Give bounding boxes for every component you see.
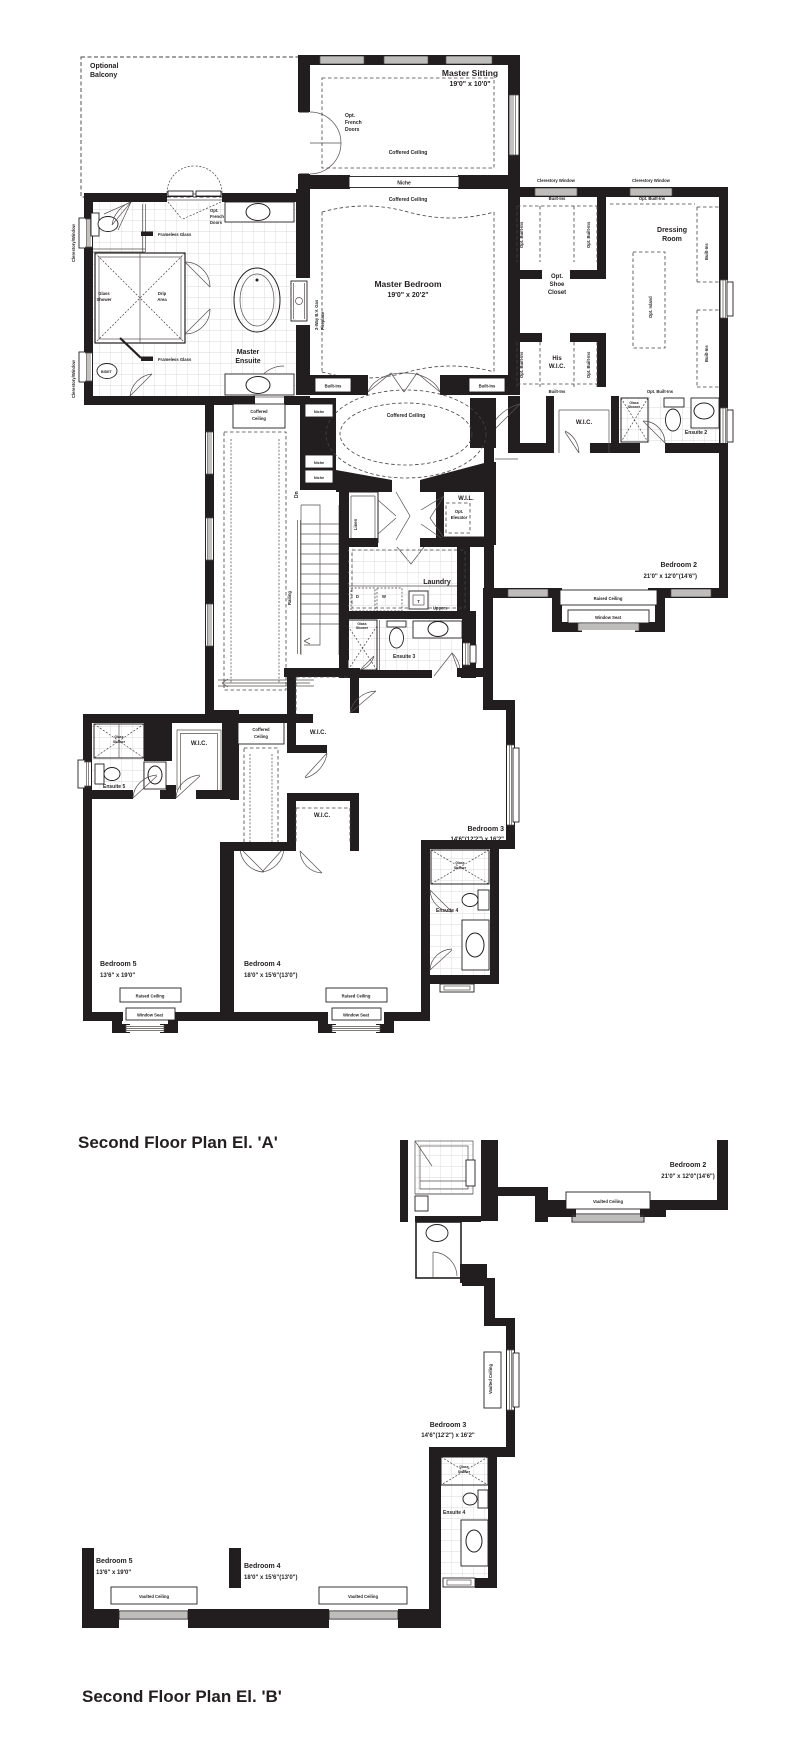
svg-text:Raised Ceiling: Raised Ceiling — [342, 994, 371, 999]
svg-text:Master: Master — [237, 349, 260, 356]
svg-text:Second Floor Plan El. 'A': Second Floor Plan El. 'A' — [78, 1133, 278, 1152]
svg-text:Bedroom 5: Bedroom 5 — [100, 961, 137, 968]
svg-text:Vaulted Ceiling: Vaulted Ceiling — [139, 1594, 169, 1599]
svg-text:French: French — [345, 120, 362, 126]
svg-text:Opt.: Opt. — [345, 113, 356, 119]
svg-text:Bedroom 2: Bedroom 2 — [660, 562, 697, 569]
svg-text:Window Seat: Window Seat — [343, 1013, 370, 1018]
svg-text:Built-Ins: Built-Ins — [704, 345, 709, 362]
svg-text:Second Floor Plan El. 'B': Second Floor Plan El. 'B' — [82, 1687, 282, 1706]
svg-text:Bedroom 2: Bedroom 2 — [670, 1162, 707, 1169]
svg-text:19'0" x 20'2": 19'0" x 20'2" — [387, 292, 428, 299]
svg-text:Drip: Drip — [158, 291, 167, 296]
svg-text:T: T — [417, 599, 420, 604]
svg-text:Shower: Shower — [628, 405, 641, 409]
svg-text:Ensuite 2: Ensuite 2 — [685, 430, 707, 436]
svg-text:Built-Ins: Built-Ins — [325, 384, 342, 389]
svg-text:Glass: Glass — [114, 735, 123, 739]
svg-text:Niche: Niche — [314, 476, 324, 480]
svg-text:Bedroom 3: Bedroom 3 — [430, 1422, 467, 1429]
svg-text:Window Seat: Window Seat — [137, 1013, 164, 1018]
svg-text:Railing: Railing — [287, 591, 292, 605]
svg-text:Doors: Doors — [345, 127, 360, 133]
svg-text:Shoe: Shoe — [550, 282, 565, 288]
svg-text:D: D — [356, 594, 359, 599]
svg-text:W.I.L.: W.I.L. — [458, 496, 474, 502]
svg-text:Niche: Niche — [397, 181, 411, 187]
svg-text:W.I.C.: W.I.C. — [314, 813, 331, 819]
svg-text:21'0" x 12'0"(14'6"): 21'0" x 12'0"(14'6") — [643, 574, 697, 580]
svg-text:Vaulted Ceiling: Vaulted Ceiling — [348, 1594, 378, 1599]
svg-text:Coffered Ceiling: Coffered Ceiling — [389, 197, 428, 203]
svg-text:21'0" x 12'0"(14'6"): 21'0" x 12'0"(14'6") — [661, 1174, 715, 1180]
svg-text:Coffered: Coffered — [252, 727, 270, 732]
svg-text:Shower: Shower — [96, 297, 111, 302]
svg-text:Glass: Glass — [455, 861, 464, 865]
svg-text:13'6" x 19'0": 13'6" x 19'0" — [100, 973, 135, 979]
svg-text:Opt. Built-Ins: Opt. Built-Ins — [519, 351, 524, 378]
svg-text:Raised Ceiling: Raised Ceiling — [594, 596, 623, 601]
svg-text:Closet: Closet — [548, 290, 566, 296]
svg-text:Clerestory Window: Clerestory Window — [632, 178, 671, 183]
svg-text:Clerestory/Window: Clerestory/Window — [71, 359, 76, 398]
svg-text:Ensuite 5: Ensuite 5 — [103, 784, 125, 790]
svg-text:Master Sitting: Master Sitting — [442, 68, 498, 78]
svg-text:Raised Ceiling: Raised Ceiling — [136, 994, 165, 999]
svg-text:Opt. Island: Opt. Island — [648, 296, 653, 318]
svg-text:Clerestory/Window: Clerestory/Window — [71, 223, 76, 262]
svg-text:Opt. Built-Ins: Opt. Built-Ins — [586, 221, 591, 248]
svg-text:Coffered Ceiling: Coffered Ceiling — [387, 413, 426, 419]
svg-text:Window Seat: Window Seat — [595, 615, 622, 620]
svg-text:Ceiling: Ceiling — [254, 734, 268, 739]
svg-text:Frameless Glass: Frameless Glass — [158, 232, 192, 237]
svg-text:18'0" x 15'6"(13'0"): 18'0" x 15'6"(13'0") — [244, 973, 298, 979]
svg-text:Opt. Built-Ins: Opt. Built-Ins — [519, 221, 524, 248]
svg-text:Laundry: Laundry — [423, 579, 451, 586]
svg-text:Opt. Built-Ins: Opt. Built-Ins — [639, 196, 666, 201]
svg-text:Elevator: Elevator — [451, 515, 468, 520]
svg-text:Niche: Niche — [314, 410, 324, 414]
svg-text:Shower: Shower — [458, 1470, 471, 1474]
svg-text:Bedroom 5: Bedroom 5 — [96, 1558, 133, 1565]
svg-text:W.I.C.: W.I.C. — [191, 741, 208, 747]
svg-text:W: W — [382, 594, 386, 599]
svg-text:Dn: Dn — [294, 491, 300, 498]
svg-text:Vaulted Ceiling: Vaulted Ceiling — [593, 1199, 623, 1204]
svg-text:W.I.C.: W.I.C. — [576, 420, 593, 426]
svg-text:13'6" x 19'0": 13'6" x 19'0" — [96, 1570, 131, 1576]
svg-text:French: French — [210, 214, 224, 219]
svg-text:His: His — [552, 356, 562, 362]
svg-text:Opt.: Opt. — [551, 274, 563, 280]
svg-text:Clerestory Window: Clerestory Window — [537, 178, 576, 183]
svg-text:Opt.: Opt. — [210, 208, 218, 213]
svg-text:Dressing: Dressing — [657, 227, 687, 234]
svg-text:Optional: Optional — [90, 63, 118, 70]
svg-text:Niche: Niche — [314, 461, 324, 465]
svg-text:Bedroom 4: Bedroom 4 — [244, 1563, 281, 1570]
svg-text:BIDET: BIDET — [101, 370, 113, 374]
svg-text:W.I.C.: W.I.C. — [310, 730, 327, 736]
svg-text:Opt.: Opt. — [455, 509, 463, 514]
svg-text:Built-Ins: Built-Ins — [549, 389, 566, 394]
svg-text:Ensuite 4: Ensuite 4 — [443, 1510, 465, 1516]
svg-text:Ensuite 3: Ensuite 3 — [393, 654, 415, 660]
svg-text:Shower: Shower — [113, 740, 126, 744]
svg-text:Room: Room — [662, 236, 682, 243]
svg-text:Bedroom 3: Bedroom 3 — [467, 826, 504, 833]
svg-text:Vaulted Ceiling: Vaulted Ceiling — [488, 1364, 493, 1394]
svg-text:Area: Area — [157, 297, 167, 302]
svg-text:Glass: Glass — [459, 1465, 468, 1469]
svg-text:Doors: Doors — [210, 220, 223, 225]
svg-text:Frameless Glass: Frameless Glass — [158, 357, 192, 362]
svg-text:Uppers: Uppers — [433, 606, 448, 611]
svg-text:Fireplace: Fireplace — [320, 311, 325, 330]
svg-text:Master Bedroom: Master Bedroom — [374, 279, 442, 289]
svg-text:2-Way B.V. Gas: 2-Way B.V. Gas — [314, 299, 319, 330]
svg-text:19'0" x 10'0": 19'0" x 10'0" — [449, 81, 490, 88]
svg-text:Shower: Shower — [356, 626, 369, 630]
svg-text:14'6"(12'2") x 16'2": 14'6"(12'2") x 16'2" — [421, 1433, 475, 1439]
svg-text:Ceiling: Ceiling — [252, 416, 266, 421]
svg-text:Coffered Ceiling: Coffered Ceiling — [389, 150, 428, 156]
svg-text:Opt. Built-Ins: Opt. Built-Ins — [647, 389, 674, 394]
svg-text:Ensuite: Ensuite — [235, 358, 260, 365]
svg-text:Opt. Built-Ins: Opt. Built-Ins — [586, 351, 591, 378]
svg-text:Linen: Linen — [353, 518, 358, 530]
svg-text:Glass: Glass — [98, 291, 110, 296]
svg-text:Coffered: Coffered — [250, 409, 268, 414]
svg-text:18'0" x 15'6"(13'0"): 18'0" x 15'6"(13'0") — [244, 1575, 298, 1581]
svg-text:Built-Ins: Built-Ins — [479, 384, 496, 389]
svg-text:Balcony: Balcony — [90, 72, 117, 79]
svg-text:Built-Ins: Built-Ins — [704, 243, 709, 260]
svg-text:14'6"(12'2") x 16'2": 14'6"(12'2") x 16'2" — [450, 837, 504, 843]
svg-text:W.I.C.: W.I.C. — [549, 364, 566, 370]
svg-text:Bedroom 4: Bedroom 4 — [244, 961, 281, 968]
svg-text:Shower: Shower — [454, 866, 467, 870]
svg-text:Built-Ins: Built-Ins — [549, 196, 566, 201]
